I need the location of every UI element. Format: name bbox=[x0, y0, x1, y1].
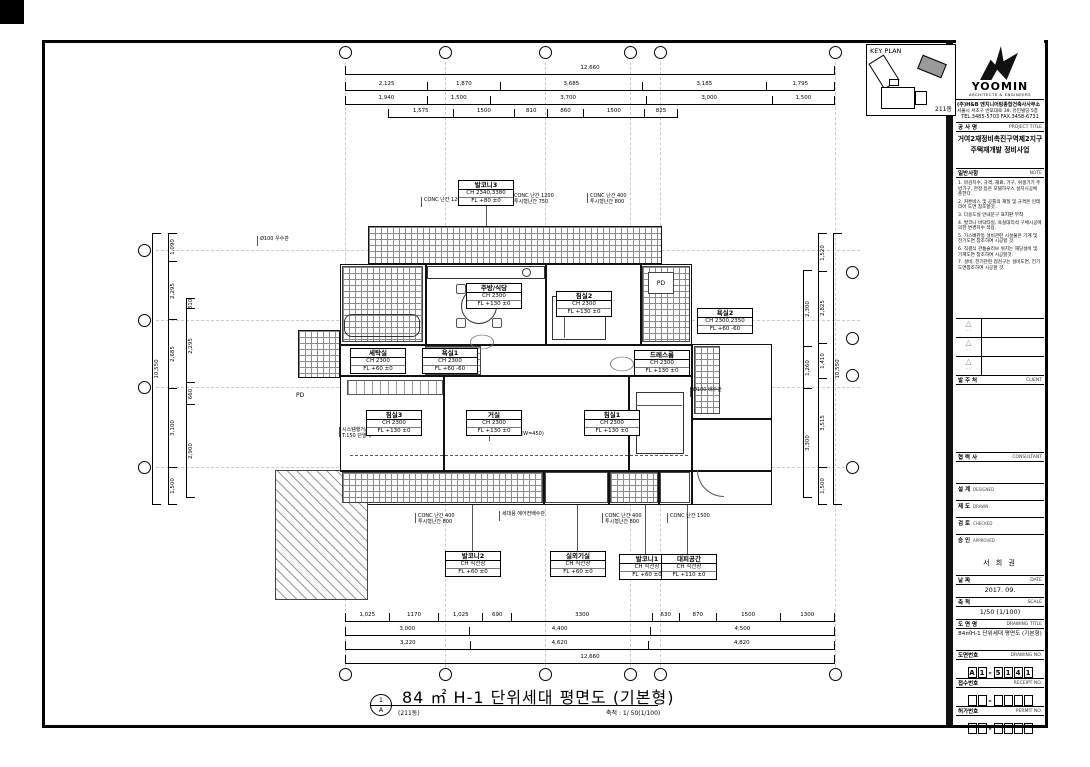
pd-shaft-box: PD bbox=[648, 272, 674, 294]
grid-bubble bbox=[846, 266, 859, 279]
consultant-header-en: CONSULTANT bbox=[1012, 455, 1042, 460]
title-block: YOOMIN ARCHITECTS & ENGINEERS (주)H&B 엔지니… bbox=[956, 40, 1044, 725]
dim-segment: 12,660 bbox=[345, 66, 835, 74]
dim-segment: 2,295 bbox=[187, 308, 195, 382]
annotation-note: CONC 난간 400 투시형난간 800 bbox=[590, 193, 627, 205]
signoff-label-en: APPROVED bbox=[973, 538, 995, 543]
dim-segment: 3,100 bbox=[169, 388, 177, 467]
note-item: 6. 직결식 관통슬리브 위치는 해당설비 및 기계도면 참조하여 시공할것. bbox=[958, 247, 1042, 258]
dim-bottom-row2: 3,0004,4004,500 bbox=[345, 627, 835, 636]
drawing-sheet-page: { "sheet": { "key_plan_title": "KEY PLAN… bbox=[0, 0, 1090, 767]
signoff-row-approved: 승 인APPROVED bbox=[956, 534, 1044, 551]
scale-header-ko: 축 척 bbox=[958, 598, 970, 606]
room-label-발코니3: 발코니3CH 2340,3380FL +80 ±0 bbox=[458, 180, 514, 206]
grid-bubble bbox=[439, 668, 452, 681]
key-plan-block bbox=[881, 87, 915, 109]
room-name: 침실3 bbox=[367, 411, 421, 420]
drawing-title-header-ko: 도 면 명 bbox=[958, 620, 977, 628]
date-header-ko: 날 짜 bbox=[958, 576, 970, 584]
dim-segment: 825 bbox=[644, 109, 678, 117]
date-header-en: DATE bbox=[1030, 578, 1042, 583]
marker-letter: A bbox=[371, 706, 391, 714]
grid-bubble bbox=[339, 46, 352, 59]
dim-segment: 860 bbox=[547, 109, 582, 117]
dim-top-row1: 2,1251,8703,6853,1851,795 bbox=[345, 82, 835, 91]
annotation-leader bbox=[667, 513, 668, 523]
annotation-note: CONC 난간 1500 bbox=[670, 513, 710, 519]
room-name: 침실1 bbox=[585, 411, 639, 420]
grid-bubble bbox=[138, 314, 151, 327]
client-header: 발 주 처 CLIENT bbox=[956, 375, 1044, 385]
note-item: 3. 다용도실 안내문구 표지판 부착 bbox=[958, 213, 1042, 219]
dim-segment: 1,940 bbox=[345, 96, 427, 104]
room-name: 주방/식당 bbox=[467, 284, 521, 293]
dim-segment: 10,550 bbox=[153, 233, 161, 505]
project-name-line1: 거여2재정비촉진구역제2지구 bbox=[956, 134, 1044, 145]
grid-bubble bbox=[846, 461, 859, 474]
note-item: 5. 가스배관등 설비관련 시설물은 기계 및 전기도면 참조하여 시공할 것. bbox=[958, 234, 1042, 245]
note-header-en: NOTE bbox=[1029, 171, 1042, 176]
annotation-note: CONC 난간 1200 투시형난간 750 bbox=[514, 193, 554, 205]
dim-left-overall: 10,550 bbox=[152, 233, 161, 505]
dim-segment: 1,025 bbox=[438, 613, 482, 621]
annex-tile bbox=[694, 346, 720, 414]
signoff-label-ko: 제 도 bbox=[958, 504, 970, 510]
drawing-title-value: 84㎡H-1 단위세대 평면도 (기본형) bbox=[958, 631, 1042, 638]
room-ceiling-height: CH 2300 bbox=[585, 420, 639, 428]
revision-description-cell bbox=[982, 338, 1044, 356]
room-ceiling-height: CH 2340,3380 bbox=[459, 190, 513, 198]
room-name: 욕실2 bbox=[698, 309, 752, 318]
grid-bubble bbox=[846, 369, 859, 382]
grid-bubble bbox=[339, 668, 352, 681]
revision-triangle-icon: △· · bbox=[956, 319, 982, 337]
drawing-no-header: 도면번호 DRAWING NO. bbox=[956, 650, 1044, 660]
partition-wall bbox=[545, 264, 547, 344]
signoff-row-drawn: 제 도DRAWN bbox=[956, 500, 1044, 517]
dim-segment: 2,295 bbox=[169, 261, 177, 320]
dim-segment: 1500 bbox=[583, 109, 645, 117]
room-floor-level: FL +60 ±0 bbox=[446, 569, 500, 576]
revision-row: △· · bbox=[956, 337, 1044, 356]
signoff-label-ko: 설 계 bbox=[958, 487, 970, 493]
dim-segment: 2,685 bbox=[169, 319, 177, 387]
number-char-box: 1 bbox=[978, 667, 987, 678]
permit-no-header-en: PERMIT NO. bbox=[1016, 709, 1042, 714]
chair-icon bbox=[492, 318, 502, 328]
partition-wall bbox=[692, 418, 772, 420]
partition-wall bbox=[608, 470, 610, 505]
title-underline bbox=[370, 705, 658, 706]
grid-bubble bbox=[138, 461, 151, 474]
dim-segment: 810 bbox=[514, 109, 547, 117]
grid-bubble bbox=[439, 46, 452, 59]
key-plan-block bbox=[915, 91, 927, 105]
permit-no-boxes: - bbox=[956, 718, 1044, 737]
room-ceiling-height: CH 직천장 bbox=[551, 561, 605, 569]
dim-segment: 3,515 bbox=[819, 378, 827, 467]
dim-segment: 1,090 bbox=[169, 233, 177, 261]
partition-wall bbox=[640, 264, 642, 344]
dim-bottom-overall: 12,660 bbox=[345, 655, 835, 664]
room-ceiling-height: CH 2300 bbox=[423, 358, 477, 366]
balcony2-deck bbox=[342, 472, 543, 503]
room-label-욕실1: 욕실1CH 2300FL +60 -60 bbox=[422, 348, 478, 374]
room-label-실외기실: 실외기실CH 직천장FL +60 ±0 bbox=[550, 551, 606, 577]
grid-bubble bbox=[138, 381, 151, 394]
dim-segment: 1,500 bbox=[772, 96, 835, 104]
dim-segment: 3,000 bbox=[646, 96, 772, 104]
room-ceiling-height: CH 2300 bbox=[635, 360, 689, 368]
dim-segment: 2,825 bbox=[819, 271, 827, 342]
drawing-no-header-ko: 도면번호 bbox=[958, 651, 978, 659]
bathtub bbox=[344, 314, 420, 337]
dim-segment: 3,300 bbox=[804, 388, 812, 498]
revision-row: △· · bbox=[956, 356, 1044, 375]
client-header-en: CLIENT bbox=[1026, 378, 1042, 383]
number-char-box bbox=[1024, 723, 1033, 734]
dim-right-outer: 1,5202,8251,4103,5151,500 bbox=[818, 233, 827, 505]
dim-top-row3: 1,57515008108601500825 bbox=[388, 109, 678, 118]
number-char-box bbox=[994, 695, 1003, 706]
annotation-leader bbox=[421, 197, 422, 207]
refuge-space bbox=[660, 472, 690, 503]
room-ceiling-height: CH 직천장 bbox=[446, 561, 500, 569]
number-char-box bbox=[1004, 695, 1013, 706]
grid-bubble bbox=[654, 668, 667, 681]
number-char-box bbox=[1014, 695, 1023, 706]
room-label-거실: 거실CH 2300FL +130 ±0 bbox=[466, 410, 522, 436]
annotation-leader bbox=[257, 236, 258, 246]
dim-segment: 1,500 bbox=[169, 467, 177, 505]
signoff-label-ko: 승 인 bbox=[958, 538, 970, 544]
note-header: 일반사항 NOTE bbox=[956, 168, 1044, 178]
dim-segment: 690 bbox=[482, 613, 511, 621]
dim-right-overall: 10,550 bbox=[833, 233, 842, 505]
room-label-침실3: 침실3CH 2300FL +130 ±0 bbox=[366, 410, 422, 436]
room-label-드레스룸: 드레스룸CH 2300FL +130 ±0 bbox=[634, 350, 690, 376]
dim-segment: 1,260 bbox=[804, 346, 812, 388]
revision-row: △· · bbox=[956, 318, 1044, 337]
dim-segment: 630 bbox=[652, 613, 679, 621]
signoff-row-checked: 검 토CHECKED bbox=[956, 517, 1044, 534]
dim-bottom-row1: 1,02511701,025690330063087015001300 bbox=[345, 613, 835, 622]
revision-description-cell bbox=[982, 357, 1044, 375]
partition-wall bbox=[543, 470, 545, 505]
dim-top-overall: 12,660 bbox=[345, 66, 835, 75]
signoff-label-en: DRAWN bbox=[973, 504, 988, 509]
room-label-주방/식당: 주방/식당CH 2300FL +130 ±0 bbox=[466, 283, 522, 309]
revision-rows: △· ·△· ·△· · bbox=[956, 318, 1044, 375]
annotation-leader bbox=[339, 427, 340, 437]
number-char-box: 4 bbox=[1014, 667, 1023, 678]
note-item: 2. 커튼박스 및 공틀의 재질 및 규격은 인테리어 도면 참조할것. bbox=[958, 200, 1042, 211]
drawing-no-header-en: DRAWING NO. bbox=[1011, 653, 1042, 658]
dim-segment: 2,300 bbox=[804, 270, 812, 346]
drawing-title-header-en: DRAWING TITLE bbox=[1007, 622, 1042, 627]
number-char-box bbox=[1024, 695, 1033, 706]
annotation-note: Ø100 우수관 bbox=[260, 236, 289, 242]
project-title-header-ko: 공 사 명 bbox=[958, 123, 977, 131]
number-char-box bbox=[978, 723, 987, 734]
drawing-subtitle: (211동) bbox=[398, 708, 420, 717]
dim-segment: 4,400 bbox=[469, 627, 650, 635]
room-floor-level: FL +130 ±0 bbox=[585, 428, 639, 435]
note-item: 7. 설비, 전기관련 점검구는 설비도면, 전기도면참조하여 시공할 것. bbox=[958, 260, 1042, 271]
annotation-leader bbox=[415, 513, 416, 523]
date-value: 2017. 09. bbox=[956, 586, 1044, 594]
room-label-침실2: 침실2CH 2300FL +130 ±0 bbox=[556, 291, 612, 317]
dim-segment: 1,520 bbox=[819, 233, 827, 271]
annotation-leader bbox=[602, 513, 603, 523]
dim-segment: 1,575 bbox=[388, 109, 453, 117]
balcony3-deck bbox=[368, 226, 662, 264]
wardrobe bbox=[347, 380, 443, 395]
permit-no-header-ko: 허가번호 bbox=[958, 707, 978, 715]
number-char-box: - bbox=[987, 668, 993, 677]
partition-wall bbox=[340, 344, 692, 346]
number-char-box bbox=[968, 723, 977, 734]
dim-segment: 1,500 bbox=[427, 96, 490, 104]
scale-header: 축 척 SCALE bbox=[956, 597, 1044, 607]
annotation-leader bbox=[587, 193, 588, 203]
dim-segment: 1,410 bbox=[819, 343, 827, 379]
floor-plan-area: 12,6602,1251,8703,6853,1851,7951,9401,50… bbox=[0, 0, 946, 767]
room-floor-level: FL +130 ±0 bbox=[557, 309, 611, 316]
room-name: 실외기실 bbox=[551, 552, 605, 561]
dim-segment: 4,820 bbox=[648, 641, 835, 649]
room-name: 침실2 bbox=[557, 292, 611, 301]
approver-name: 서 희 권 bbox=[956, 558, 1044, 568]
dim-segment: 1,025 bbox=[345, 613, 389, 621]
grid-bubble bbox=[829, 668, 842, 681]
signoff-row-designed: 설 계DESIGNED bbox=[956, 483, 1044, 500]
annotation-leader bbox=[690, 387, 691, 397]
dim-segment: 10,550 bbox=[834, 233, 842, 505]
number-char-box: - bbox=[987, 696, 993, 705]
receipt-no-header-en: RECEIPT NO. bbox=[1014, 681, 1042, 686]
door-tag-oval bbox=[610, 357, 634, 371]
drawing-scale-note: 축척 : 1/ 50(1/100) bbox=[606, 708, 660, 717]
annotation-note: 세대용 에어컨배수관 bbox=[502, 511, 545, 517]
number-char-box: 1 bbox=[1024, 667, 1033, 678]
room-label-대피공간: 대피공간CH 직천장FL +110 ±0 bbox=[661, 554, 717, 580]
grid-bubble bbox=[846, 332, 859, 345]
note-header-ko: 일반사항 bbox=[958, 169, 978, 177]
ac-unit-room bbox=[545, 472, 608, 503]
grid-bubble bbox=[624, 46, 637, 59]
dim-segment: 4,620 bbox=[470, 641, 649, 649]
company-address: 서울시 서초구 반포대로 39, 유민빌딩 5층 bbox=[957, 108, 1036, 114]
dim-segment: 3,000 bbox=[345, 627, 469, 635]
client-header-ko: 발 주 처 bbox=[958, 376, 977, 384]
partition-wall bbox=[443, 377, 445, 470]
grid-bubble bbox=[539, 46, 552, 59]
receipt-no-header: 접수번호 RECEIPT NO. bbox=[956, 678, 1044, 688]
dim-left-inner: 3102,2956602,900 bbox=[186, 298, 195, 498]
company-logo-icon bbox=[980, 46, 1018, 80]
chair-icon bbox=[456, 284, 466, 294]
annotation-note: CONC 난간 400 투시형난간 800 bbox=[418, 513, 455, 525]
dim-segment: 3,700 bbox=[490, 96, 646, 104]
signoff-fields: 설 계DESIGNED제 도DRAWN검 토CHECKED승 인APPROVED bbox=[956, 483, 1044, 551]
number-char-box: - bbox=[987, 724, 993, 733]
consultant-header: 협 력 사 CONSULTANT bbox=[956, 452, 1044, 462]
dim-segment: 1500 bbox=[453, 109, 515, 117]
note-item: 1. 마감치수, 규격, 재료, 기구, 위생기기 주방가구, 천정 등은 모델… bbox=[958, 181, 1042, 198]
key-plan-title: KEY PLAN bbox=[870, 47, 901, 55]
number-char-box bbox=[994, 723, 1003, 734]
consultant-header-ko: 협 력 사 bbox=[958, 453, 977, 461]
room-floor-level: FL +60 -60 bbox=[423, 366, 477, 373]
dim-right-inner: 2,3001,2603,300 bbox=[803, 270, 812, 498]
bed-pillow bbox=[636, 392, 682, 406]
room-ceiling-height: CH 2300 bbox=[367, 420, 421, 428]
signoff-label-en: CHECKED bbox=[973, 521, 992, 526]
room-name: 세탁실 bbox=[351, 349, 405, 358]
key-plan-box: KEY PLAN 211동 bbox=[866, 44, 956, 116]
dim-segment: 2,900 bbox=[187, 404, 195, 498]
dim-bottom-row3: 3,2204,6204,820 bbox=[345, 641, 835, 650]
pd-shaft-text: PD bbox=[296, 392, 304, 399]
project-title-header: 공 사 명 PROJECT TITLE bbox=[956, 122, 1044, 132]
grid-bubble bbox=[624, 668, 637, 681]
grid-bubble bbox=[539, 668, 552, 681]
room-label-발코니2: 발코니2CH 직천장FL +60 ±0 bbox=[445, 551, 501, 577]
key-plan-highlighted-building bbox=[917, 55, 947, 79]
note-item: 4. 발코니 바닥타일, 욕실대리석 구체시공에 의한 변경치수 적용. bbox=[958, 221, 1042, 232]
dim-segment: 2,125 bbox=[345, 82, 427, 90]
notes-list: 1. 마감치수, 규격, 재료, 기구, 위생기기 주방가구, 천정 등은 모델… bbox=[958, 181, 1042, 273]
dim-segment: 1300 bbox=[780, 613, 835, 621]
project-name: 거여2재정비촉진구역제2지구 주택재개발 정비사업 bbox=[956, 134, 1044, 156]
room-ceiling-height: CH 2300,2350 bbox=[698, 318, 752, 326]
dim-left-outer: 1,0902,2952,6853,1001,500 bbox=[168, 233, 177, 505]
room-ceiling-height: CH 2300 bbox=[467, 293, 521, 301]
company-name: (주)H&B 엔지니어링종합건축사사무소 bbox=[957, 101, 1043, 108]
annotation-note: CONC 난간 400 투시형난간 800 bbox=[605, 513, 642, 525]
dim-top-row2: 1,9401,5003,7003,0001,500 bbox=[345, 96, 835, 105]
dim-segment: 1,795 bbox=[766, 82, 835, 90]
balcony1-deck bbox=[610, 472, 658, 503]
dim-segment: 1,870 bbox=[427, 82, 499, 90]
room-ceiling-height: CH 직천장 bbox=[662, 564, 716, 572]
room-floor-level: FL +110 ±0 bbox=[662, 572, 716, 579]
scale-header-en: SCALE bbox=[1028, 600, 1042, 605]
revision-triangle-icon: △· · bbox=[956, 357, 982, 375]
room-floor-level: FL +80 ±0 bbox=[459, 198, 513, 205]
receipt-no-header-ko: 접수번호 bbox=[958, 679, 978, 687]
room-floor-level: FL +130 ±0 bbox=[367, 428, 421, 435]
number-char-box bbox=[1004, 723, 1013, 734]
number-char-box: 1 bbox=[1004, 667, 1013, 678]
scale-value: 1/50 (1/100) bbox=[956, 608, 1044, 616]
number-char-box bbox=[978, 695, 987, 706]
marker-number: 1 bbox=[371, 696, 391, 704]
room-name: 드레스룸 bbox=[635, 351, 689, 360]
number-char-box: A bbox=[968, 667, 977, 678]
dim-segment: 1,500 bbox=[819, 467, 827, 505]
dim-segment: 1170 bbox=[389, 613, 439, 621]
company-logo-subtitle: ARCHITECTS & ENGINEERS bbox=[956, 92, 1044, 97]
room-label-욕실2: 욕실2CH 2300,2350FL +60 -60 bbox=[697, 308, 753, 334]
room-name: 발코니3 bbox=[459, 181, 513, 190]
title-block-separator bbox=[946, 40, 953, 725]
room-floor-level: FL +130 ±0 bbox=[467, 301, 521, 308]
signoff-label-en: DESIGNED bbox=[973, 487, 994, 492]
dim-segment: 3,685 bbox=[500, 82, 643, 90]
revision-description-cell bbox=[982, 319, 1044, 337]
dim-segment: 3,185 bbox=[642, 82, 765, 90]
room-ceiling-height: CH 2300 bbox=[557, 301, 611, 309]
permit-no-header: 허가번호 PERMIT NO. bbox=[956, 706, 1044, 716]
annotation-note: Ø100 배수관 bbox=[693, 387, 722, 393]
project-title-header-en: PROJECT TITLE bbox=[1009, 125, 1042, 130]
dim-segment: 4,500 bbox=[650, 627, 835, 635]
number-char-box bbox=[968, 695, 977, 706]
room-floor-level: FL +130 ±0 bbox=[467, 428, 521, 435]
company-tel: TEL.3485-5703 FAX.3458-6731 bbox=[957, 114, 1043, 120]
dim-segment: 3300 bbox=[511, 613, 651, 621]
date-header: 날 짜 DATE bbox=[956, 575, 1044, 585]
dim-segment: 660 bbox=[187, 382, 195, 403]
dim-segment: 870 bbox=[679, 613, 716, 621]
dim-segment: 3,220 bbox=[345, 641, 470, 649]
room-floor-level: FL +60 ±0 bbox=[551, 569, 605, 576]
room-floor-level: FL +130 ±0 bbox=[635, 368, 689, 375]
grid-bubble bbox=[138, 244, 151, 257]
room-name: 대피공간 bbox=[662, 555, 716, 564]
room-name: 욕실1 bbox=[423, 349, 477, 358]
grid-bubble bbox=[654, 46, 667, 59]
dim-segment: 1500 bbox=[716, 613, 780, 621]
room-name: 거실 bbox=[467, 411, 521, 420]
project-name-line2: 주택재개발 정비사업 bbox=[956, 145, 1044, 156]
room-name: 발코니2 bbox=[446, 552, 500, 561]
room-floor-level: FL +60 -60 bbox=[698, 326, 752, 333]
key-plan-building-label: 211동 bbox=[935, 104, 952, 113]
dim-segment: 310 bbox=[187, 298, 195, 308]
drawing-title-header: 도 면 명 DRAWING TITLE bbox=[956, 619, 1044, 629]
number-char-box bbox=[1014, 723, 1023, 734]
dim-segment: 12,660 bbox=[345, 655, 835, 663]
left-annex-deck bbox=[298, 330, 340, 378]
chair-icon bbox=[456, 318, 466, 328]
grid-bubble bbox=[829, 46, 842, 59]
revision-triangle-icon: △· · bbox=[956, 338, 982, 356]
room-ceiling-height: CH 2300 bbox=[467, 420, 521, 428]
room-ceiling-height: CH 2300 bbox=[351, 358, 405, 366]
signoff-label-ko: 검 토 bbox=[958, 521, 970, 527]
room-label-세탁실: 세탁실CH 2300FL +60 ±0 bbox=[350, 348, 406, 374]
sink-icon bbox=[522, 268, 531, 277]
partition-wall bbox=[658, 470, 660, 505]
room-label-침실1: 침실1CH 2300FL +130 ±0 bbox=[584, 410, 640, 436]
number-char-box: 5 bbox=[994, 667, 1003, 678]
annotation-leader bbox=[499, 511, 500, 521]
curtain-box-dashline bbox=[350, 455, 688, 456]
key-plan-block bbox=[889, 79, 899, 86]
room-floor-level: FL +60 ±0 bbox=[351, 366, 405, 373]
